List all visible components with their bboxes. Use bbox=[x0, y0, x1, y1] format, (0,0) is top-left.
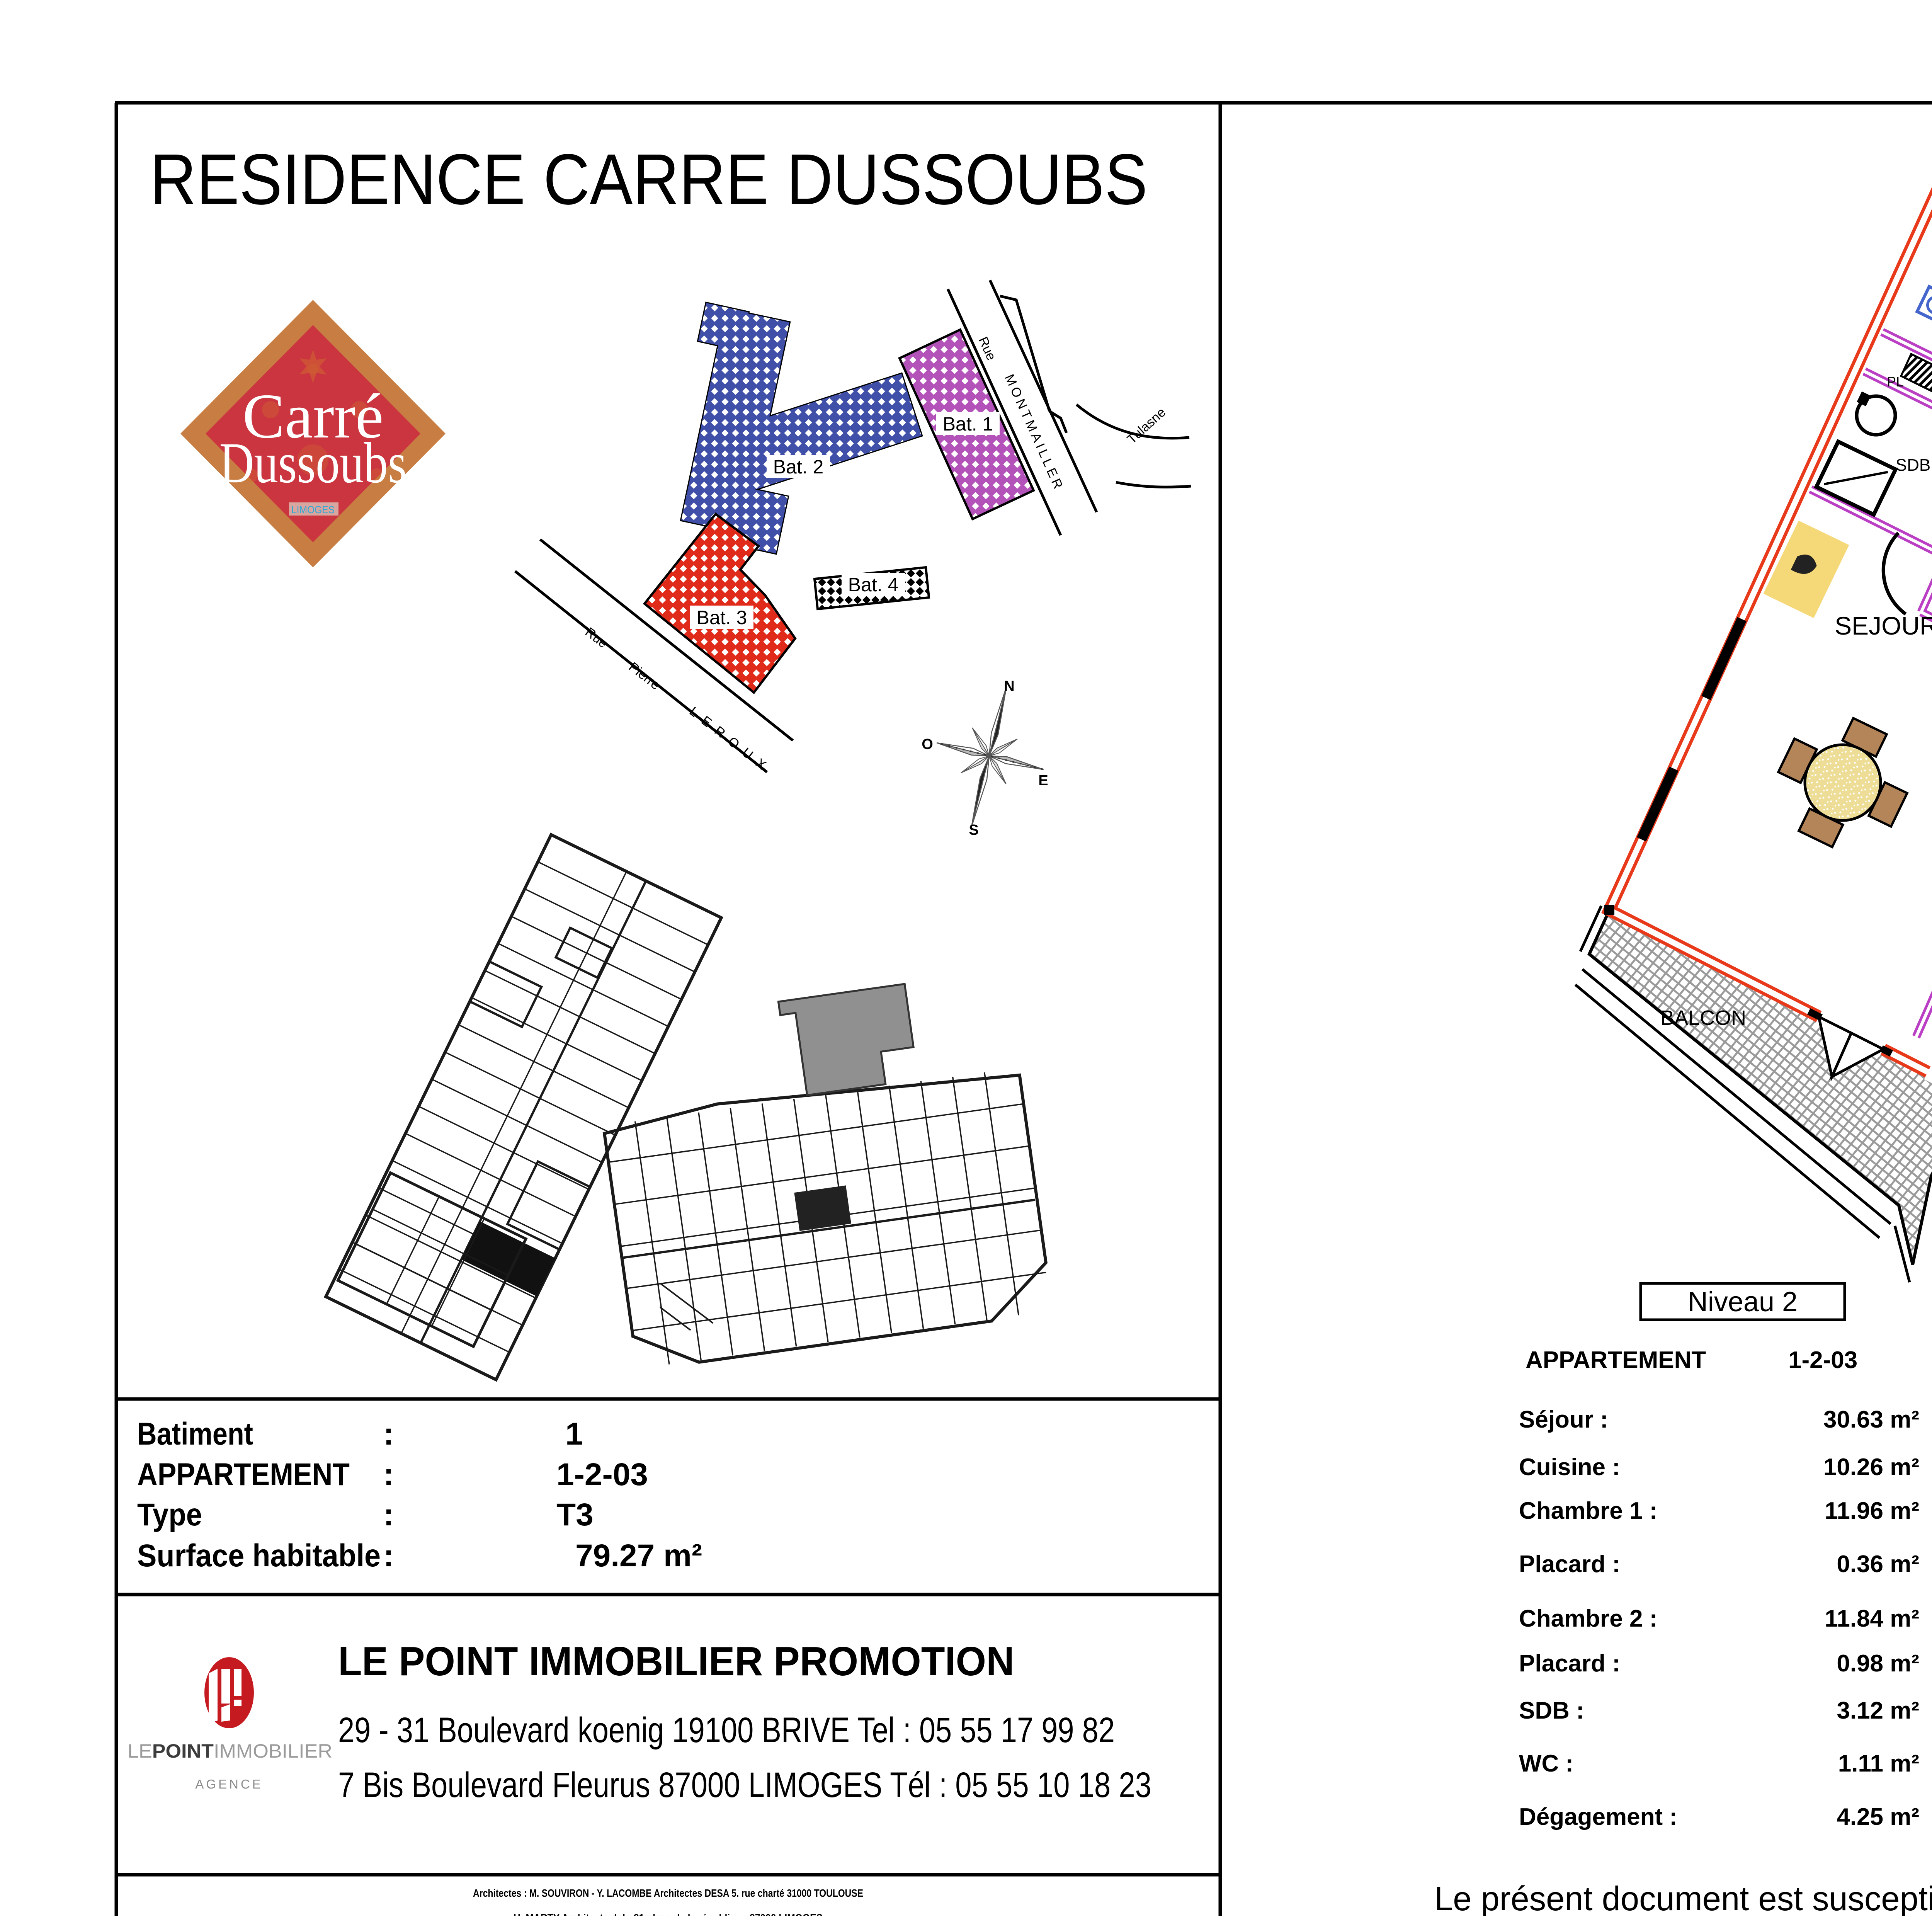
svg-text:3.12 m²: 3.12 m² bbox=[1837, 1697, 1919, 1724]
svg-text:79.27 m²: 79.27 m² bbox=[575, 1538, 702, 1573]
svg-text:Cuisine :: Cuisine : bbox=[1519, 1454, 1620, 1481]
svg-text:1.11 m²: 1.11 m² bbox=[1838, 1750, 1919, 1777]
svg-text:LE POINT IMMOBILIER PROMOTION: LE POINT IMMOBILIER PROMOTION bbox=[338, 1639, 1014, 1684]
svg-text:Niveau 2: Niveau 2 bbox=[1688, 1287, 1798, 1317]
svg-text:O: O bbox=[922, 736, 933, 752]
svg-text:Le présent document est suscep: Le présent document est susceptible de m… bbox=[1434, 1879, 1932, 1916]
svg-text:AGENCE: AGENCE bbox=[195, 1777, 263, 1791]
svg-text:Surface habitable: Surface habitable bbox=[137, 1538, 381, 1573]
svg-text:Dussoubs: Dussoubs bbox=[219, 431, 407, 495]
svg-text:Batiment: Batiment bbox=[137, 1416, 253, 1452]
svg-text::: : bbox=[383, 1416, 394, 1452]
svg-text:29 - 31 Boulevard koenig 19100: 29 - 31 Boulevard koenig 19100 BRIVE Tel… bbox=[338, 1710, 1115, 1750]
svg-text:Dégagement :: Dégagement : bbox=[1519, 1804, 1677, 1830]
svg-text:RESIDENCE CARRE DUSSOUBS: RESIDENCE CARRE DUSSOUBS bbox=[150, 140, 1148, 220]
svg-text:LIMOGES: LIMOGES bbox=[291, 504, 335, 516]
svg-text:SEJOUR: SEJOUR bbox=[1835, 611, 1932, 640]
svg-text:7 Bis Boulevard Fleurus 87000: 7 Bis Boulevard Fleurus 87000 LIMOGES Té… bbox=[338, 1765, 1151, 1805]
svg-text:T3: T3 bbox=[556, 1497, 594, 1532]
svg-text:Chambre 1 :: Chambre 1 : bbox=[1519, 1498, 1657, 1524]
svg-text::: : bbox=[383, 1538, 394, 1573]
svg-text:Type: Type bbox=[137, 1497, 202, 1532]
svg-text:Bat. 2: Bat. 2 bbox=[773, 456, 824, 478]
svg-text:SDB :: SDB : bbox=[1519, 1697, 1584, 1724]
svg-text:Bat. 1: Bat. 1 bbox=[943, 413, 993, 435]
svg-text:PL: PL bbox=[1887, 374, 1904, 390]
svg-text:Bat. 3: Bat. 3 bbox=[697, 607, 747, 628]
svg-text:Placard :: Placard : bbox=[1519, 1650, 1620, 1677]
svg-text:WC :: WC : bbox=[1519, 1750, 1573, 1777]
svg-text:0.36 m²: 0.36 m² bbox=[1837, 1551, 1919, 1578]
svg-text:Architectes : M. SOUVIRON - Y.: Architectes : M. SOUVIRON - Y. LACOMBE A… bbox=[473, 1887, 863, 1899]
svg-text:1-2-03: 1-2-03 bbox=[556, 1457, 648, 1492]
svg-text:H. MARTY Architecte dplg 31 pl: H. MARTY Architecte dplg 31 place de la … bbox=[514, 1912, 823, 1916]
svg-text:N: N bbox=[1004, 678, 1014, 694]
svg-text:Séjour :: Séjour : bbox=[1519, 1406, 1608, 1433]
svg-text:LEPOINTIMMOBILIER: LEPOINTIMMOBILIER bbox=[128, 1740, 332, 1762]
svg-text:1-2-03: 1-2-03 bbox=[1788, 1347, 1857, 1373]
svg-text:1: 1 bbox=[565, 1416, 583, 1452]
svg-text:10.26 m²: 10.26 m² bbox=[1823, 1454, 1919, 1481]
svg-text:4.25 m²: 4.25 m² bbox=[1837, 1804, 1919, 1830]
svg-text:30.63 m²: 30.63 m² bbox=[1823, 1406, 1919, 1433]
svg-text:0.98 m²: 0.98 m² bbox=[1837, 1650, 1919, 1677]
svg-text:BALCON: BALCON bbox=[1660, 1006, 1746, 1030]
svg-text:11.84 m²: 11.84 m² bbox=[1825, 1605, 1919, 1632]
svg-text:Bat. 4: Bat. 4 bbox=[848, 574, 899, 596]
svg-text::: : bbox=[383, 1457, 394, 1492]
svg-text:APPARTEMENT: APPARTEMENT bbox=[1526, 1347, 1706, 1373]
svg-text:11.96 m²: 11.96 m² bbox=[1825, 1498, 1919, 1524]
svg-text:APPARTEMENT: APPARTEMENT bbox=[137, 1457, 350, 1492]
svg-text::: : bbox=[383, 1497, 394, 1532]
svg-text:Chambre 2 :: Chambre 2 : bbox=[1519, 1605, 1657, 1632]
svg-text:Placard :: Placard : bbox=[1519, 1551, 1620, 1578]
svg-text:S: S bbox=[969, 822, 978, 838]
svg-text:SDB: SDB bbox=[1896, 456, 1930, 475]
svg-text:E: E bbox=[1038, 773, 1048, 789]
